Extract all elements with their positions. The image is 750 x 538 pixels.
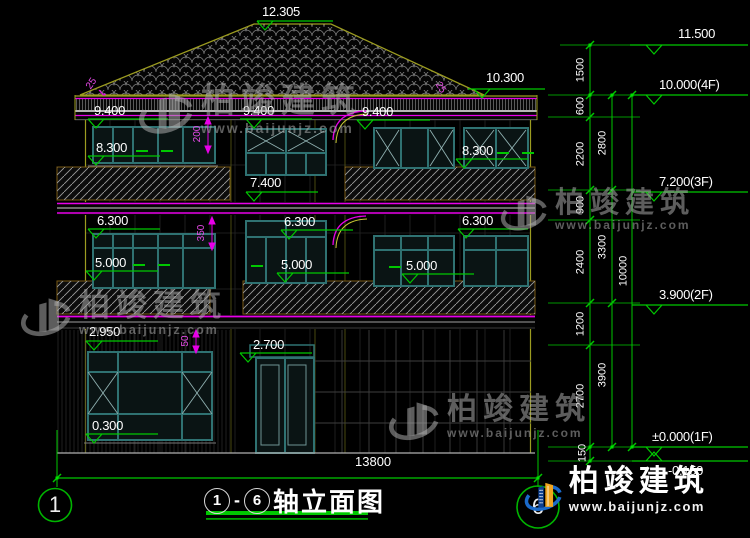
watermark-brand: 柏竣建筑 [201,84,361,120]
title-dash: - [234,490,240,511]
elevation-label: 9.400 [362,105,393,118]
elevation-label: 9.400 [94,104,125,117]
watermark-url: www.baijunjz.com [447,426,591,440]
dim-text: 2200 [576,142,587,166]
elevation-label: 7.400 [250,176,281,189]
level-label: 10.000(4F) [659,78,720,91]
watermark-url: www.baijunjz.com [79,323,227,338]
elevation-label: 8.300 [462,144,493,157]
elevation-label: 5.000 [281,258,312,271]
entrance-door [250,345,314,453]
watermark: 柏竣建筑 www.baijunjz.com [388,394,591,446]
overall-width-dim: 13800 [355,455,391,468]
grip-dots [589,44,634,463]
elevation-label: 6.300 [97,214,128,227]
watermark-url: www.baijunjz.com [555,218,695,232]
watermark-logo-icon [388,394,440,446]
dim-text: 600 [576,97,587,115]
elevation-label: 0.300 [92,419,123,432]
level-label: ±0.000(1F) [652,430,713,443]
title-text: 轴立面图 [273,482,385,519]
elevation-label: 8.300 [96,141,127,154]
level-label: 11.500 [678,27,715,40]
watermark: 柏竣建筑 www.baijunjz.com [500,188,695,236]
elevation-label: 5.000 [95,256,126,269]
watermark-logo-icon [20,290,72,342]
dim-text-overall: 10000 [619,256,630,287]
brand-logo-url: www.baijunjz.com [569,499,705,514]
dim-text: 2400 [576,250,587,274]
level-label: 3.900(2F) [659,288,713,301]
dim-text: 3300 [598,235,609,259]
watermark: 柏竣建筑 www.baijunjz.com [20,290,227,342]
watermark-brand: 柏竣建筑 [447,394,591,426]
title-axis-end: 6 [244,488,270,514]
elevation-label: 6.300 [462,214,493,227]
dim-text: 3900 [598,363,609,387]
cad-elevation-screenshot: 12.305 9.400 9.400 9.400 8.300 8.300 7.4… [0,0,750,538]
watermark-logo-icon [138,84,194,140]
dim-text: 1500 [576,58,587,82]
axis-bubble-1: 1 [49,492,61,518]
drawing-title: 1 - 6 轴立面图 [204,482,385,519]
elevation-label-peak: 12.305 [262,5,300,18]
dim-text: 1200 [576,312,587,336]
watermark-brand: 柏竣建筑 [555,188,695,218]
elevation-label: 2.700 [253,338,284,351]
title-axis-start: 1 [204,488,230,514]
dim-text: 150 [578,444,589,462]
level-label: 10.300 [486,71,524,84]
brand-logo-icon [524,466,563,526]
detail-dim: 350 [197,225,207,242]
brand-logo: 柏竣建筑 www.baijunjz.com [524,466,750,526]
elevation-label: 5.000 [406,259,437,272]
dim-text: 2800 [598,131,609,155]
elevation-label: 6.300 [284,215,315,228]
watermark: 柏竣建筑 www.baijunjz.com [138,84,361,140]
watermark-brand: 柏竣建筑 [79,290,227,323]
watermark-logo-icon [500,188,548,236]
brand-logo-name: 柏竣建筑 [569,465,709,498]
watermark-url: www.baijunjz.com [201,120,361,137]
